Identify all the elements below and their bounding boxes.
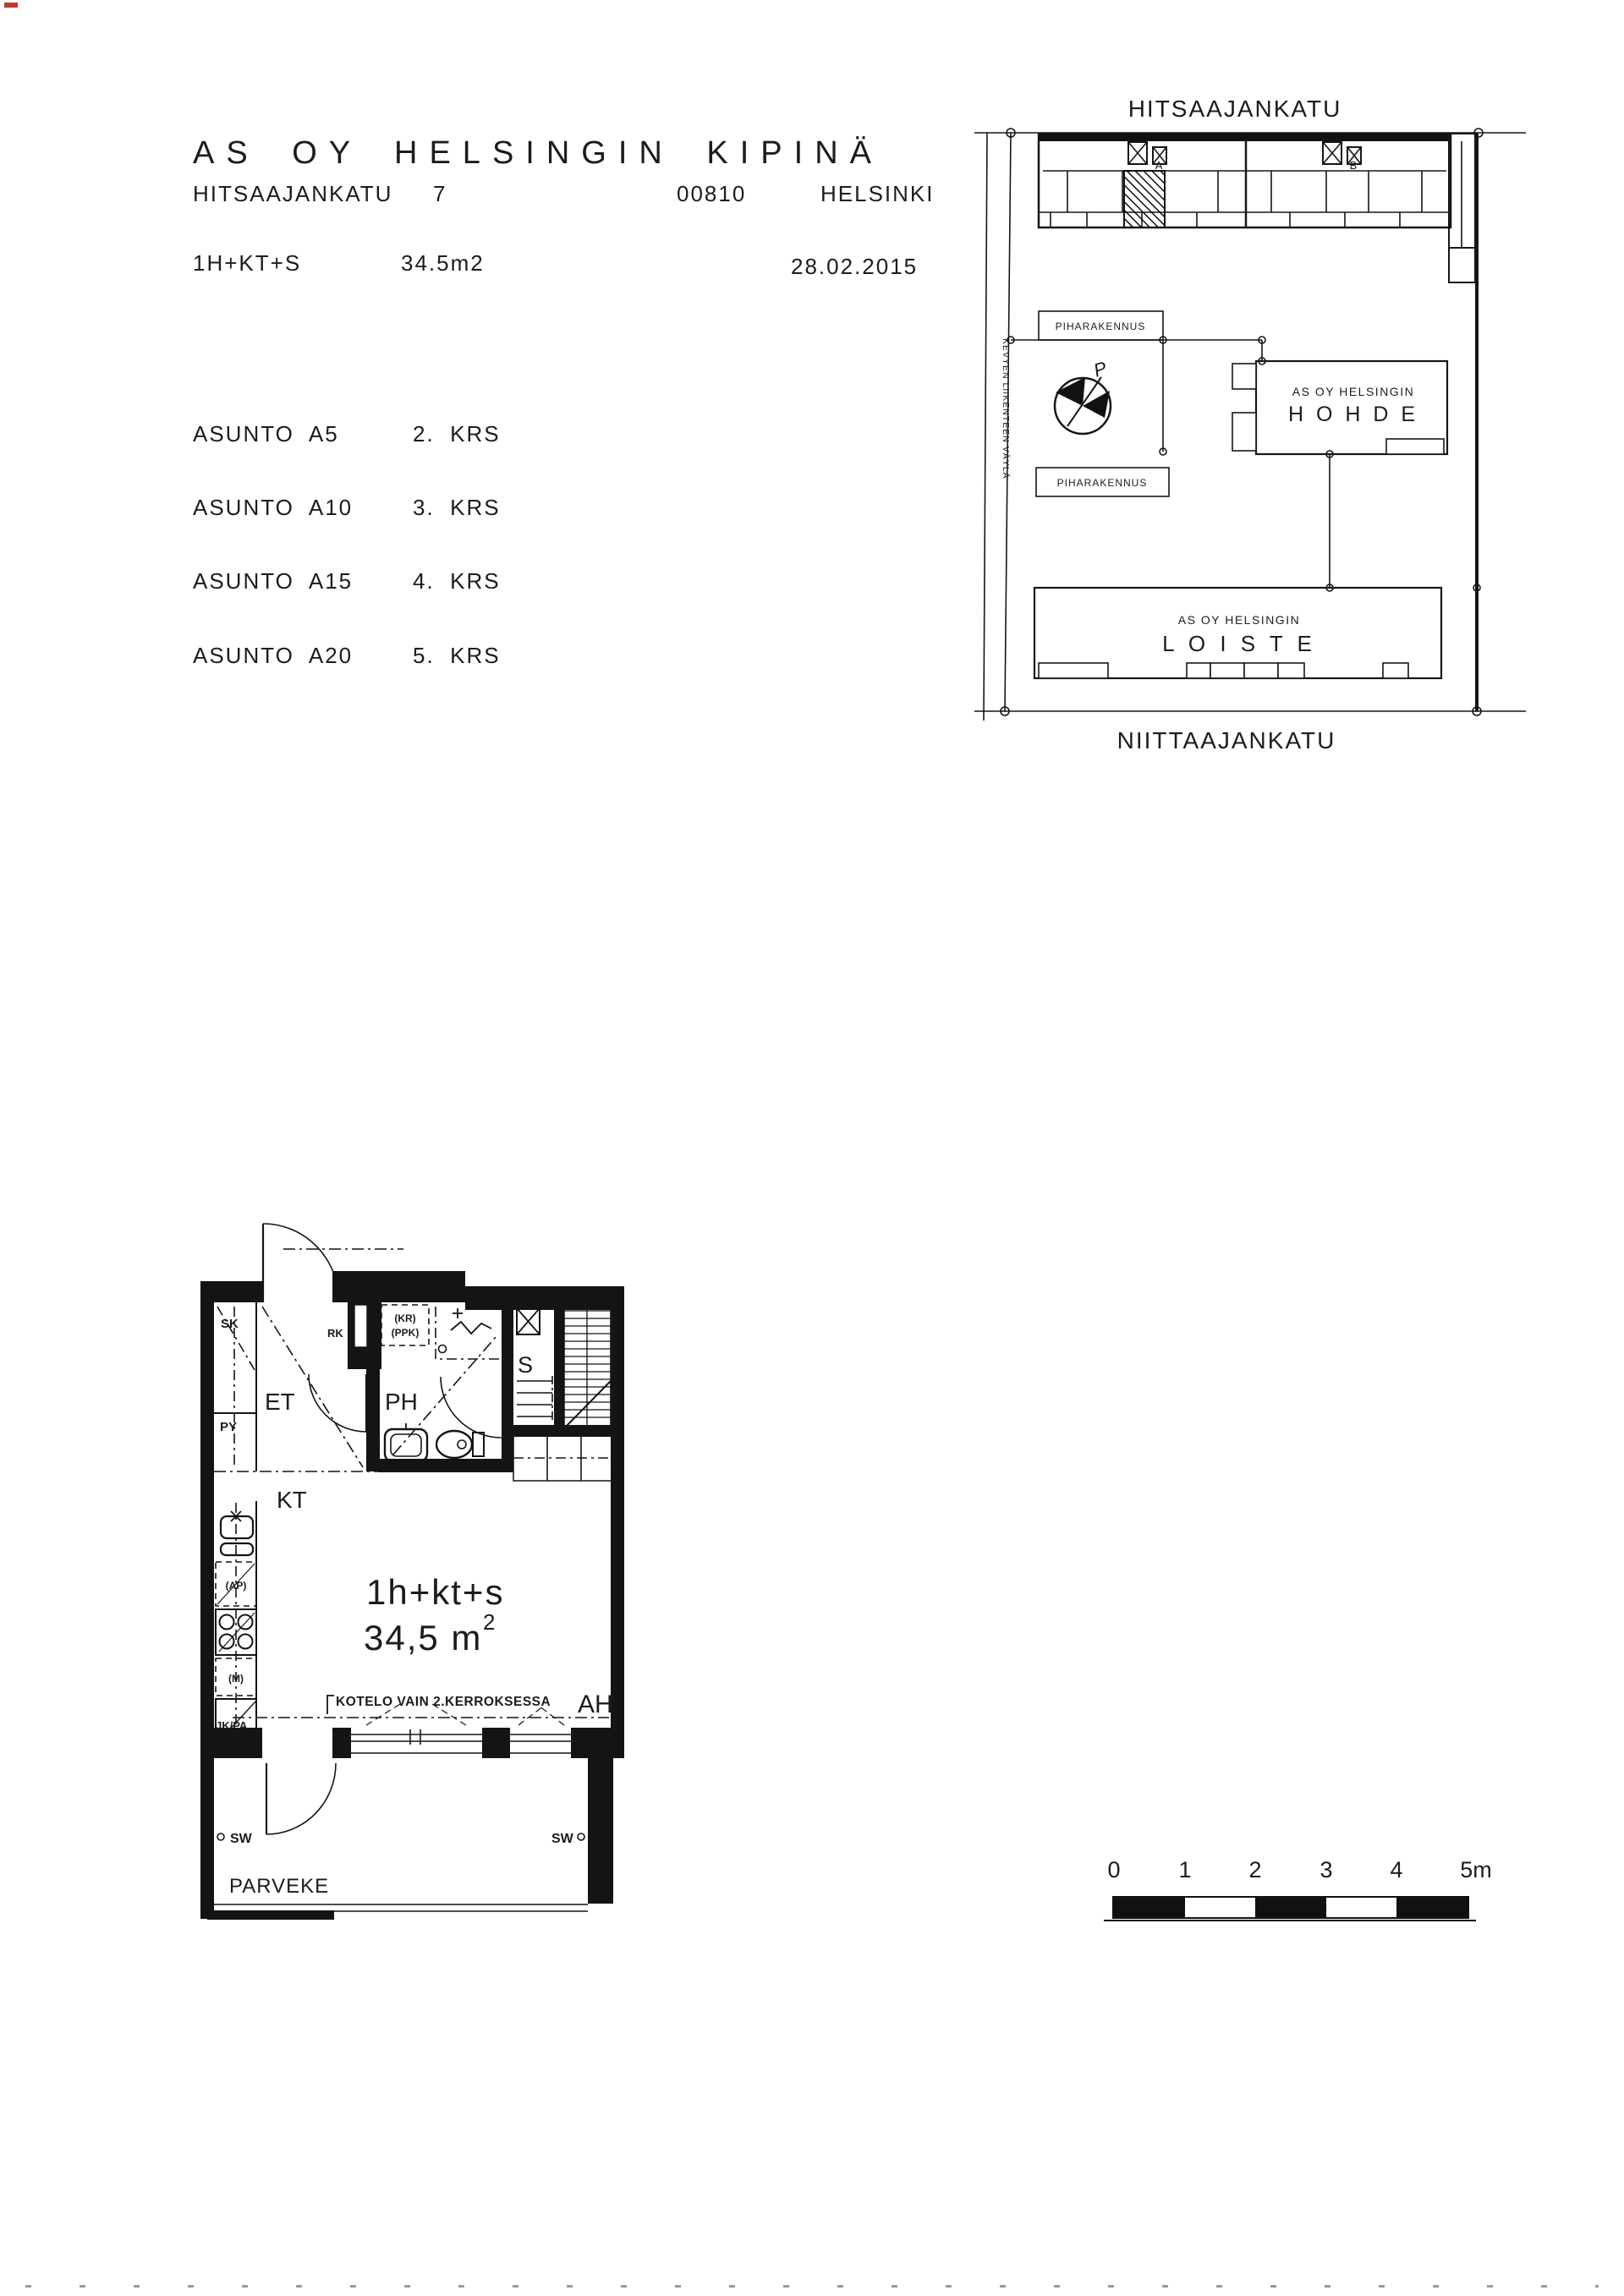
toilet [436, 1431, 484, 1458]
sauna: S [517, 1308, 552, 1423]
room-ph-label: PH [385, 1389, 418, 1415]
ph-door [309, 1374, 366, 1432]
kotelo-note: KOTELO VAIN 2.KERROKSESSA [336, 1695, 551, 1709]
page-title: AS OY HELSINGIN KIPINÄ [193, 135, 883, 172]
appliance-m-label: (M) [228, 1673, 244, 1685]
scale-tick-3: 3 [1319, 1857, 1332, 1883]
north-label: P [1091, 357, 1110, 381]
north-arrow: P [1055, 357, 1111, 434]
sauna-door [441, 1377, 502, 1438]
hohde-label-2: H O H D E [1288, 403, 1418, 426]
closet-sk-py: SK PY [214, 1302, 256, 1471]
scale-bar: 0 1 2 3 4 5m [1112, 1857, 1484, 1925]
scale-tick-0: 0 [1107, 1857, 1120, 1883]
site-street-top-label: HITSAAJANKATU [1128, 96, 1342, 122]
site-lane-label: KEVYEN LIIKENTEEN VÄYLÄ [1001, 338, 1011, 479]
sw-right-label: SW [551, 1832, 574, 1846]
room-rk-label: RK [327, 1327, 343, 1340]
scan-mark-red [4, 3, 18, 8]
appliance-kr-label: (KR) [394, 1312, 415, 1324]
address-city: HELSINKI [820, 181, 935, 207]
apartment-row-name: ASUNTO A15 [193, 568, 353, 595]
address-number: 7 [433, 181, 447, 207]
floor-plan: SK PY ET RK PH (KR) (PPK) [182, 1180, 643, 1941]
room-kt-label: KT [277, 1487, 307, 1513]
subject-apartment-hatch [1124, 171, 1165, 227]
apartment-row-name: ASUNTO A5 [193, 421, 339, 447]
apartment-row-floor: 2. KRS [413, 421, 501, 447]
appliance-ppk-label: (PPK) [392, 1327, 420, 1339]
loiste-label-2: L O I S T E [1162, 631, 1316, 656]
ah-label: AH [578, 1690, 613, 1718]
apartment-row-name: ASUNTO A10 [193, 495, 353, 521]
room-sk-label: SK [221, 1317, 239, 1331]
scale-tick-1: 1 [1178, 1857, 1191, 1883]
stair-b-label: B [1350, 159, 1358, 172]
room-py-label: PY [220, 1420, 237, 1434]
site-building-hohde: AS OY HELSINGIN H O H D E [1232, 361, 1447, 454]
apartment-row-floor: 3. KRS [413, 495, 501, 521]
stair-core-a: A [1128, 142, 1166, 172]
outbuilding-1-label: PIHARAKENNUS [1056, 321, 1146, 332]
balcony-label: PARVEKE [229, 1875, 329, 1898]
loiste-label-1: AS OY HELSINGIN [1178, 613, 1300, 627]
room-s-label: S [518, 1352, 533, 1378]
apartment-row-floor: 5. KRS [413, 643, 501, 669]
document-date: 28.02.2015 [791, 254, 918, 280]
scale-bar-baseline [1104, 1920, 1476, 1921]
room-et-label: ET [265, 1389, 295, 1415]
appliance-jkpa-label: JK/PA [216, 1719, 248, 1732]
site-building-kipina: A B [1039, 134, 1475, 282]
unit-area-label: 34,5 m [364, 1618, 482, 1658]
scale-bar-segments [1112, 1896, 1469, 1919]
document-page: AS OY HELSINGIN KIPINÄ HITSAAJANKATU 7 0… [0, 0, 1624, 2296]
site-street-bottom-label: NIITTAAJANKATU [1117, 727, 1336, 753]
balcony-door [266, 1763, 336, 1834]
scale-tick-2: 2 [1248, 1857, 1261, 1883]
hohde-label-1: AS OY HELSINGIN [1292, 385, 1414, 398]
unit-area-superscript: 2 [483, 1609, 495, 1635]
shower [436, 1307, 502, 1359]
sw-left-label: SW [230, 1832, 253, 1846]
address-street: HITSAAJANKATU [193, 181, 392, 207]
scale-tick-4: 4 [1390, 1857, 1402, 1883]
unit-type-label: 1h+kt+s [366, 1572, 504, 1612]
site-building-loiste: AS OY HELSINGIN L O I S T E [1034, 588, 1441, 678]
washbasin [385, 1423, 427, 1461]
kitchen: KT (AP) [216, 1487, 307, 1746]
site-plan: HITSAAJANKATU KEVYEN LIIKENTEEN VÄYLÄ [956, 76, 1539, 795]
stair-core-b: B [1323, 142, 1361, 172]
stair-a-label: A [1155, 159, 1163, 172]
microwave: (M) [216, 1658, 256, 1696]
apartment-type: 1H+KT+S [193, 250, 301, 277]
appliance-ap-label: (AP) [226, 1580, 247, 1592]
balcony: SW SW PARVEKE [214, 1763, 588, 1911]
scale-tick-5: 5m [1460, 1857, 1492, 1883]
apartment-row-name: ASUNTO A20 [193, 643, 353, 669]
stairwell [564, 1303, 611, 1430]
wardrobe-row [513, 1435, 615, 1481]
outbuilding-2-label: PIHARAKENNUS [1057, 477, 1148, 489]
scan-artifact [25, 2285, 1599, 2288]
address-postal-code: 00810 [677, 181, 746, 207]
kitchen-sink [221, 1511, 253, 1555]
apartment-area: 34.5m2 [401, 250, 485, 277]
apartment-row-floor: 4. KRS [413, 568, 501, 595]
